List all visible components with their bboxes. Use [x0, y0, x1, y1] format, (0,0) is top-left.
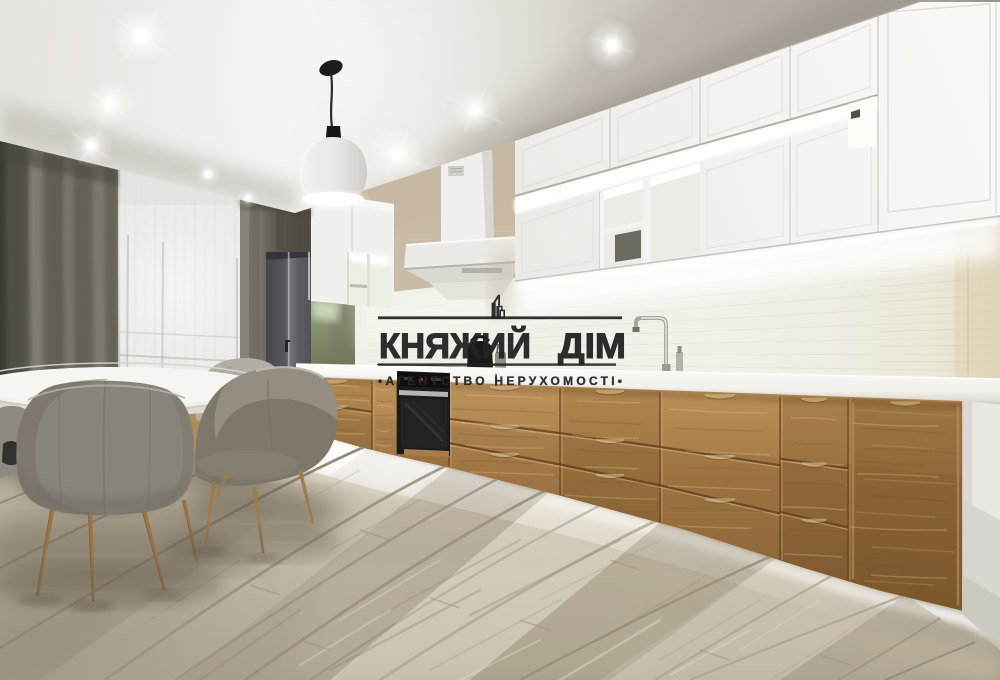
- svg-text:КНЯЖИЙ: КНЯЖИЙ: [379, 326, 531, 366]
- svg-text:•АГЕНТСТВО НЕРУХОМОСТІ•: •АГЕНТСТВО НЕРУХОМОСТІ•: [378, 374, 622, 388]
- svg-text:ДІМ: ДІМ: [558, 327, 626, 366]
